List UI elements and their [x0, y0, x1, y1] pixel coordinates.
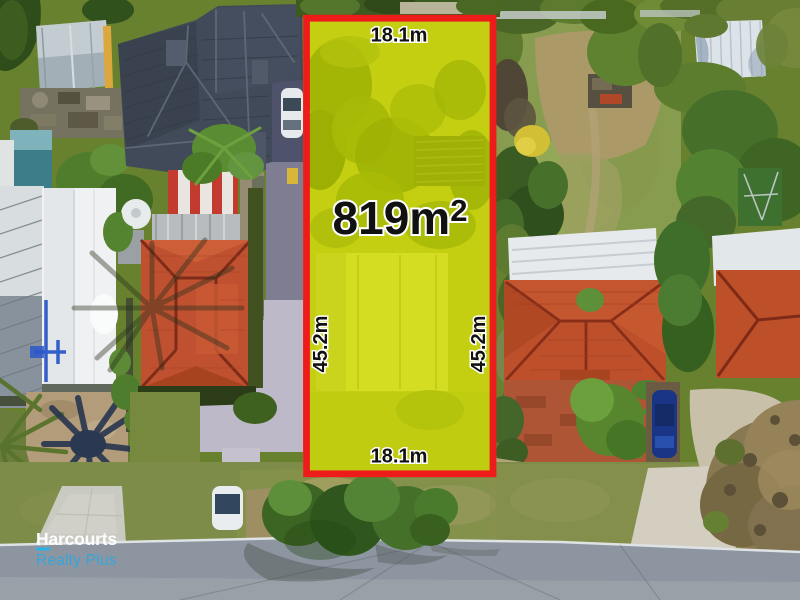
svg-text:45.2m: 45.2m	[310, 316, 332, 373]
svg-text:18.1m: 18.1m	[371, 25, 428, 47]
svg-text:819m2: 819m2	[333, 192, 468, 244]
svg-text:Realty Plus: Realty Plus	[36, 552, 117, 569]
svg-text:45.2m: 45.2m	[468, 316, 490, 373]
svg-text:Harcourts: Harcourts	[36, 529, 117, 549]
svg-text:18.1m: 18.1m	[371, 446, 428, 468]
